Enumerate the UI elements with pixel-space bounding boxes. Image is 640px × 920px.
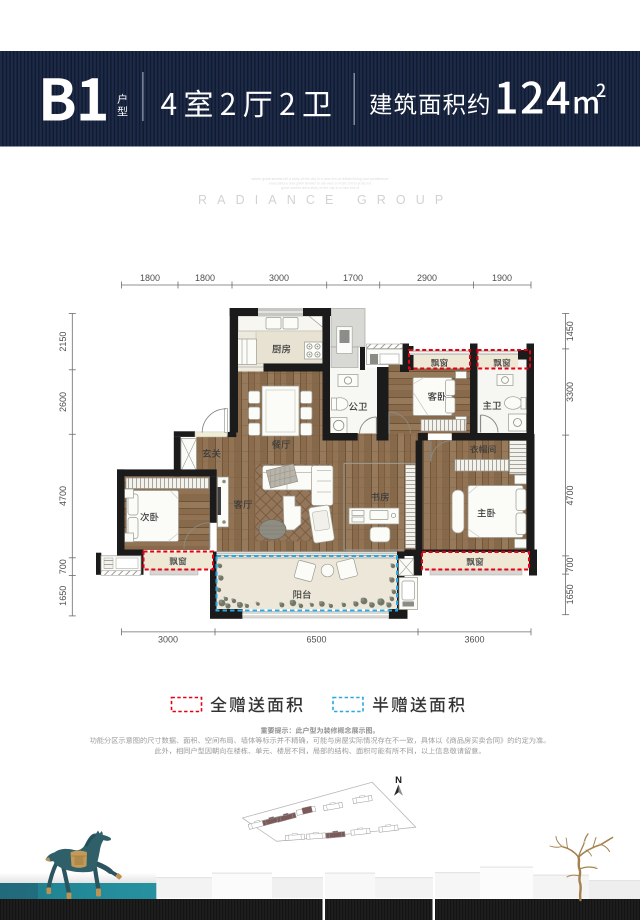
svg-text:great streets tell a story of: great streets tell a story of the city i…	[281, 186, 359, 190]
svg-text:2150: 2150	[58, 332, 68, 352]
svg-text:1650: 1650	[565, 584, 575, 604]
svg-text:700: 700	[565, 557, 575, 572]
svg-text:where great streets tell a sto: where great streets tell a story of the …	[251, 177, 388, 181]
svg-text:4700: 4700	[565, 485, 575, 505]
svg-text:1450: 1450	[565, 321, 575, 341]
svg-text:1800: 1800	[195, 273, 215, 283]
svg-text:RADIANCE GROUP: RADIANCE GROUP	[198, 193, 453, 207]
svg-text:1800: 1800	[140, 273, 160, 283]
svg-text:4700: 4700	[58, 486, 68, 506]
svg-text:3600: 3600	[464, 635, 484, 645]
svg-text:1650: 1650	[58, 586, 68, 606]
svg-text:erutcetihcra dna gnivil denife: erutcetihcra dna gnivil denifer fo are w…	[269, 182, 371, 186]
svg-text:1900: 1900	[492, 273, 512, 283]
svg-text:3300: 3300	[565, 382, 575, 402]
svg-text:3000: 3000	[158, 635, 178, 645]
svg-text:1700: 1700	[343, 273, 363, 283]
svg-text:700: 700	[58, 559, 68, 574]
svg-text:N: N	[395, 775, 402, 786]
svg-text:2600: 2600	[58, 392, 68, 412]
svg-text:3000: 3000	[269, 273, 289, 283]
svg-text:2900: 2900	[417, 273, 437, 283]
svg-text:6500: 6500	[306, 635, 326, 645]
